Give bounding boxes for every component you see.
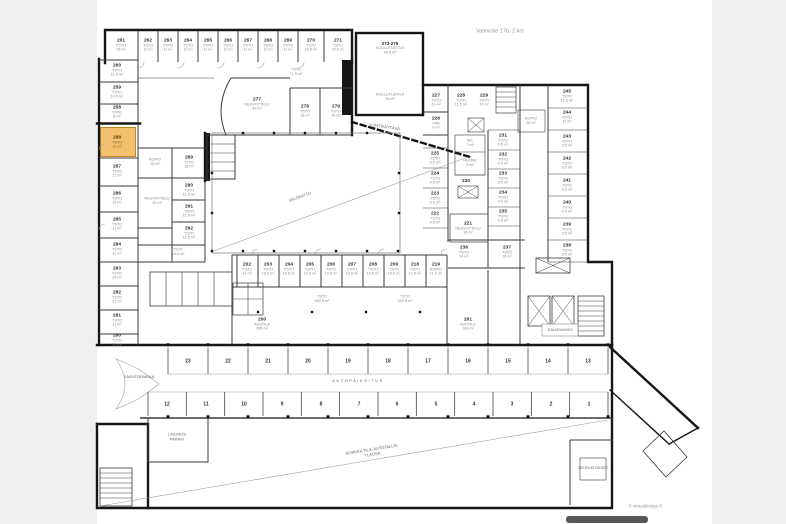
parking-spot-9: 9: [281, 401, 284, 407]
room-228[interactable]: 228TSTO11.5 m²: [455, 93, 467, 107]
annotation: AUTOPAIKOITUS: [332, 379, 384, 384]
copyright-watermark: © virtualdesign.fi: [628, 504, 661, 509]
room-223[interactable]: 223TSTO9.5 m²: [430, 191, 441, 205]
parking-spot-20: 20: [305, 358, 311, 364]
parking-spot-4: 4: [472, 401, 475, 407]
room-277[interactable]: 277NEUVOTTELU40 m²: [244, 97, 269, 111]
room-238[interactable]: 238TSTO9.5 m²: [562, 243, 573, 257]
room-262[interactable]: 262TSTO11 m²: [143, 38, 153, 52]
parking-spot-17: 17: [425, 358, 431, 364]
area-label: TSTO16.5 m²: [172, 248, 185, 257]
room-271[interactable]: 271TSTO22.5 m²: [332, 38, 345, 52]
room-230[interactable]: 230: [462, 178, 470, 183]
room-208[interactable]: 208TSTO10.5 m²: [367, 262, 380, 276]
room-243[interactable]: 243TSTO9.5 m²: [562, 134, 573, 148]
parking-spot-13: 13: [585, 358, 591, 364]
parking-spot-3: 3: [511, 401, 514, 407]
horizontal-scrollbar-thumb[interactable]: [566, 516, 648, 523]
room-281[interactable]: 281TSTO11 m²: [112, 313, 122, 327]
room-225[interactable]: 225TSTO9.5 m²: [430, 151, 441, 165]
room-283[interactable]: 283TSTO24 m²: [112, 266, 122, 280]
room-229[interactable]: 229TSTO17 m²: [479, 93, 489, 107]
room-241[interactable]: 241TSTO9.5 m²: [562, 178, 573, 192]
parking-spot-6: 6: [396, 401, 399, 407]
room-261[interactable]: 261TSTO23 m²: [116, 38, 126, 52]
room-290[interactable]: 290TSTO11.5 m²: [183, 183, 195, 197]
room-204[interactable]: 204TSTO10.5 m²: [283, 262, 296, 276]
room-244[interactable]: 244TSTO11 m²: [562, 110, 572, 124]
room-258[interactable]: 258TSTO8 m²: [112, 105, 122, 119]
area-label: KOULUTUSTILA76 m²: [376, 93, 404, 102]
parking-spot-2: 2: [549, 401, 552, 407]
plan-address-title: Valimotie 17b, 2.krs: [476, 28, 524, 34]
room-265[interactable]: 265TSTO11 m²: [203, 38, 213, 52]
room-286[interactable]: 286TSTO11 m²: [112, 191, 122, 205]
room-235[interactable]: 235TSTO9.5 m²: [498, 209, 509, 223]
room-260[interactable]: 260TSTO11.5 m²: [111, 63, 123, 77]
room-266[interactable]: 266TSTO11 m²: [223, 38, 233, 52]
room-237[interactable]: 237TSTO16 m²: [502, 245, 512, 259]
parking-spot-11: 11: [203, 401, 208, 407]
room-227[interactable]: 227TSTO21 m²: [431, 93, 441, 107]
room-270[interactable]: 270TSTO23.5 m²: [305, 38, 318, 52]
room-267[interactable]: 267TSTO11 m²: [243, 38, 253, 52]
room-201[interactable]: 201AVOTILA183 m²: [460, 317, 476, 331]
room-284[interactable]: 284TSTO11 m²: [112, 242, 122, 256]
room-245[interactable]: 245TSTO11.5 m²: [561, 89, 573, 103]
room-222[interactable]: 222TSTO9.5 m²: [430, 211, 441, 225]
parking-spot-21: 21: [265, 358, 271, 364]
parking-spot-16: 16: [465, 358, 471, 364]
room-259[interactable]: 259TSTO14.5 m²: [111, 85, 124, 99]
room-292[interactable]: 292TSTO11.5 m²: [183, 226, 195, 240]
room-206[interactable]: 206TSTO10.5 m²: [325, 262, 338, 276]
area-label: TSTO263.5 m²: [398, 295, 413, 304]
room-219[interactable]: 219KOPIO11.5 m²: [430, 262, 442, 276]
room-242[interactable]: 242TSTO9.5 m²: [562, 156, 573, 170]
annotation: LASTAUSPARKKI: [168, 432, 186, 442]
parking-spot-1: 1: [587, 401, 590, 407]
room-264[interactable]: 264TSTO11 m²: [183, 38, 193, 52]
room-233[interactable]: 233TSTO9.5 m²: [498, 171, 509, 185]
area-label: NEUVOTTELU42 m²: [144, 197, 169, 206]
room-263[interactable]: 263TSTO11 m²: [163, 38, 173, 52]
room-285[interactable]: 285TSTO11 m²: [112, 217, 122, 231]
room-224[interactable]: 224TSTO9.5 m²: [430, 171, 441, 185]
room-209[interactable]: 209TSTO10.5 m²: [388, 262, 401, 276]
room-221[interactable]: 221NEUVOTTELU16 m²: [455, 221, 480, 235]
room-232[interactable]: 232TSTO9.5 m²: [498, 152, 509, 166]
room-282[interactable]: 282TSTO21 m²: [112, 290, 122, 304]
annotation: KÄÄNTÖPAIKKA: [124, 375, 155, 380]
room-218[interactable]: 218TSTO11.5 m²: [409, 262, 421, 276]
parking-spot-15: 15: [505, 358, 511, 364]
parking-spot-5: 5: [434, 401, 437, 407]
room-234[interactable]: 234TSTO9.5 m²: [498, 190, 509, 204]
room-202[interactable]: 202TSTO14 m²: [242, 262, 252, 276]
area-label: KOPIO20 m²: [149, 158, 161, 167]
annotation: SALI/KAHVIO: [548, 328, 573, 333]
parking-spot-14: 14: [545, 358, 551, 364]
parking-spot-7: 7: [357, 401, 360, 407]
area-label: WC7 m²: [466, 139, 474, 148]
parking-spot-12: 12: [164, 401, 170, 407]
room-288[interactable]: 288TSTO11 m²: [112, 135, 122, 149]
room-226[interactable]: 226VAR9 m²: [432, 116, 440, 130]
parking-spot-18: 18: [385, 358, 391, 364]
annotation: JÄTEKATOKSET: [578, 466, 609, 471]
floorplan-viewer: Valimotie 17b, 2.krs © virtualdesign.fi …: [0, 0, 786, 524]
parking-spot-22: 22: [225, 358, 231, 364]
room-280[interactable]: 280TSTO15 m²: [112, 333, 122, 347]
room-205[interactable]: 205TSTO10.5 m²: [304, 262, 317, 276]
room-269[interactable]: 269TSTO11 m²: [283, 38, 293, 52]
room-240[interactable]: 240TSTO9.5 m²: [562, 200, 573, 214]
parking-spot-10: 10: [241, 401, 247, 407]
room-236[interactable]: 236TSTO14 m²: [459, 245, 469, 259]
room-207[interactable]: 207TSTO10.5 m²: [346, 262, 359, 276]
area-label: TSTO460.5 m²: [315, 295, 330, 304]
room-231[interactable]: 231TSTO9.5 m²: [498, 133, 509, 147]
room-289[interactable]: 289TSTO15 m²: [184, 155, 194, 169]
room-203[interactable]: 203TSTO10.5 m²: [262, 262, 275, 276]
room-278[interactable]: 278TSTO16 m²: [300, 104, 310, 118]
area-label: 273-276KOULUTUSTILA43.5 m²: [376, 41, 404, 55]
room-200[interactable]: 200AVOTILA396 m²: [254, 317, 270, 331]
area-label: KOPIO25 m²: [525, 117, 537, 126]
room-279[interactable]: 279TSTO16 m²: [331, 104, 341, 118]
room-287[interactable]: 287TSTO11 m²: [112, 164, 122, 178]
room-268[interactable]: 268TSTO11 m²: [263, 38, 273, 52]
parking-spot-8: 8: [319, 401, 322, 407]
room-239[interactable]: 239TSTO9.5 m²: [562, 222, 573, 236]
parking-spot-23: 23: [185, 358, 191, 364]
area-label: TSTO71.5 m²: [290, 68, 303, 77]
parking-spot-19: 19: [345, 358, 351, 364]
room-291[interactable]: 291TSTO11.5 m²: [183, 204, 195, 218]
area-label: HUONE9 m²: [463, 159, 477, 168]
